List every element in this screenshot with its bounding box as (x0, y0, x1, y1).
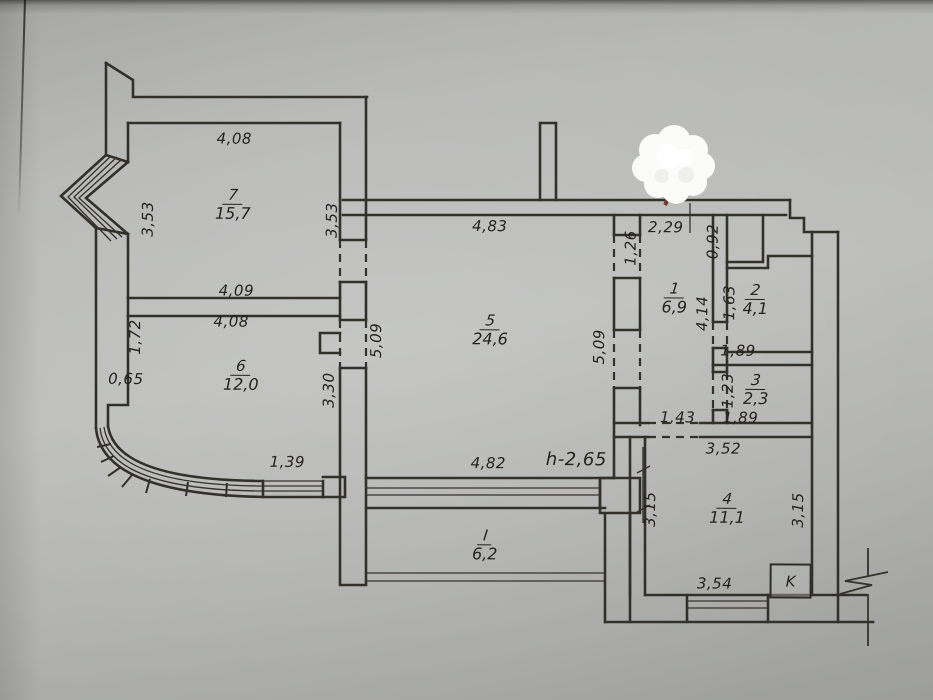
dimension-label: 4,83 (472, 217, 508, 235)
ceiling-height-note: h-2,65 (546, 449, 607, 470)
dimension-label: 5,09 (367, 323, 385, 359)
dimension-label: 4,08 (217, 129, 253, 147)
dimension-label: 4,82 (471, 454, 507, 472)
dimension-label: 4,14 (693, 296, 711, 332)
dimension-label: 3,15 (789, 492, 807, 528)
room-number: I (477, 528, 493, 545)
room-area: 4,1 (742, 301, 768, 318)
dimension-label: 3,53 (323, 202, 341, 238)
dimension-label: 0,92 (704, 224, 722, 260)
room-label: 16,9 (661, 280, 687, 316)
labels-layer: h-2,65 K 4,083,533,534,094,081,720,653,3… (0, 0, 933, 700)
room-label: 612,0 (223, 358, 259, 394)
dimension-label: 1,23 (719, 373, 737, 409)
room-number: 5 (479, 313, 500, 330)
room-area: 15,7 (215, 205, 251, 222)
room-number: 6 (230, 359, 251, 376)
room-area: 11,1 (709, 509, 745, 526)
room-area: 6,9 (661, 299, 687, 316)
room-number: 3 (745, 373, 766, 390)
room-label: 32,3 (743, 372, 769, 408)
dimension-label: 1,89 (720, 342, 756, 360)
room-number: 7 (222, 188, 243, 205)
dimension-label: 1,89 (723, 409, 759, 427)
dimension-label: 3,53 (139, 201, 157, 237)
dimension-label: 1,63 (720, 285, 738, 321)
dimension-label: 1,26 (622, 230, 640, 266)
dimension-label: 1,72 (126, 319, 144, 355)
dimension-label: 4,09 (219, 281, 255, 299)
room-label: 715,7 (215, 187, 251, 223)
floorplan-photo: h-2,65 K 4,083,533,534,094,081,720,653,3… (0, 0, 933, 700)
dimension-label: 1,39 (270, 453, 306, 471)
dimension-label: 5,09 (590, 329, 608, 365)
dimension-label: 0,65 (108, 370, 144, 388)
shaft-box: K (769, 563, 811, 598)
room-label: 524,6 (472, 312, 508, 348)
room-label: I6,2 (472, 527, 498, 563)
room-number: 4 (716, 492, 737, 509)
dimension-label: 3,54 (697, 574, 733, 592)
dimension-label: 3,15 (641, 491, 659, 527)
dimension-label: 3,52 (706, 439, 742, 457)
dimension-label: 3,30 (320, 372, 338, 408)
room-number: 1 (664, 281, 685, 298)
room-number: 2 (745, 283, 766, 300)
room-area: 24,6 (472, 331, 508, 348)
dimension-label: 1,43 (660, 408, 696, 426)
dimension-label: 2,29 (648, 218, 684, 236)
room-area: 2,3 (743, 391, 769, 408)
room-area: 6,2 (472, 546, 498, 563)
room-label: 411,1 (709, 491, 745, 527)
room-label: 24,1 (742, 282, 768, 318)
dimension-label: 4,08 (213, 312, 249, 330)
room-area: 12,0 (223, 376, 259, 393)
